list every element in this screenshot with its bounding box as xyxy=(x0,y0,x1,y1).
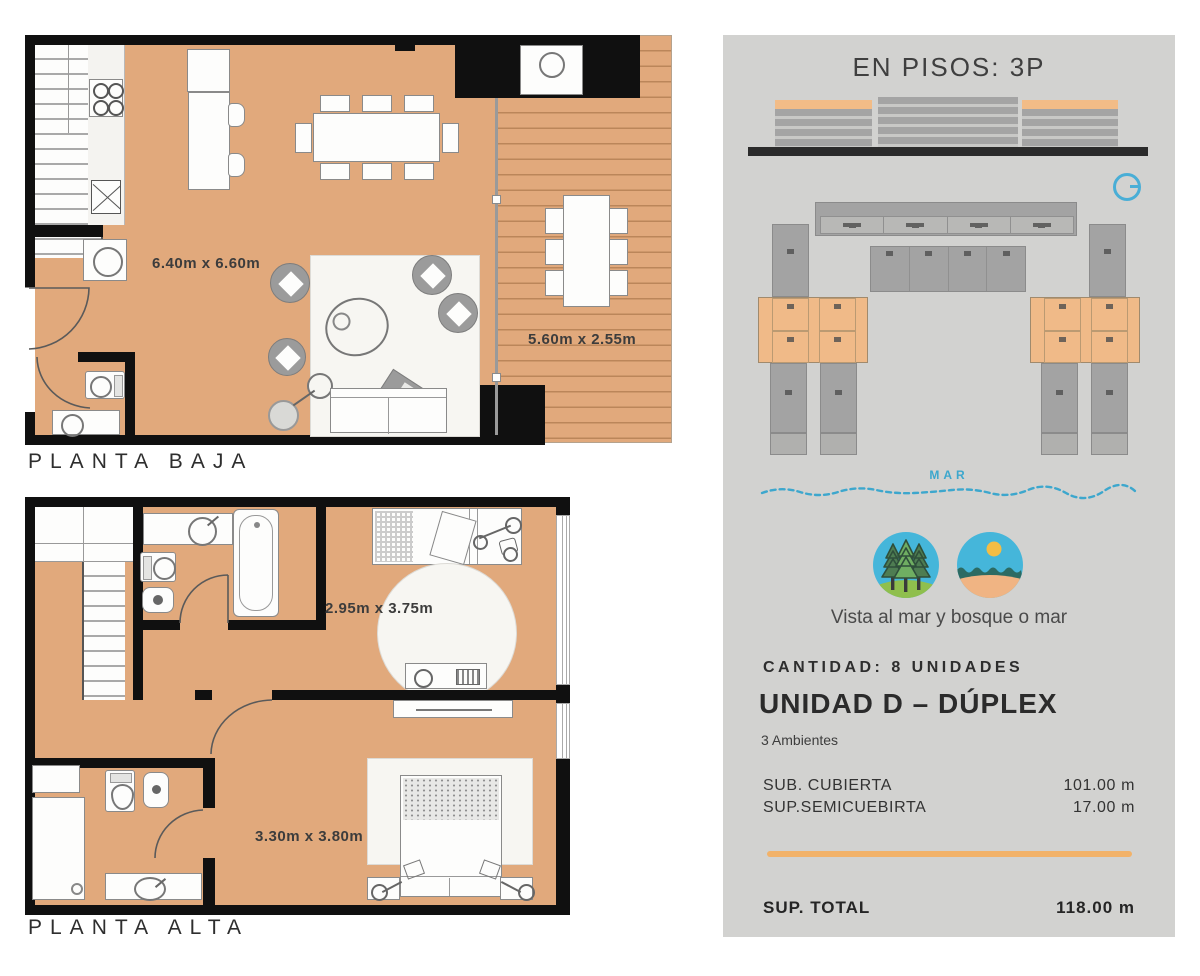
lamp xyxy=(371,884,388,901)
site-block-foot xyxy=(1091,433,1128,455)
bedroom2-dimension-label: 2.95m x 3.75m xyxy=(325,600,433,617)
dresser-item xyxy=(456,669,480,685)
desk-item xyxy=(503,547,518,562)
views-caption: Vista al mar y bosque o mar xyxy=(723,607,1175,629)
washer-drum xyxy=(93,247,123,277)
console xyxy=(393,700,513,718)
decor xyxy=(330,310,353,333)
bed-1 xyxy=(400,775,502,897)
bath-door-arc xyxy=(178,573,230,625)
unit-title: UNIDAD D – DÚPLEX xyxy=(759,688,1058,720)
wall xyxy=(395,45,415,51)
deck-table xyxy=(563,195,610,307)
window-line xyxy=(562,704,563,758)
site-unit xyxy=(871,247,910,291)
chair xyxy=(442,123,459,153)
dining-table xyxy=(313,113,440,162)
unit-d-cell xyxy=(772,298,809,331)
site-unit xyxy=(948,217,1011,233)
tub-drain xyxy=(254,522,260,528)
toilet-tank xyxy=(143,556,152,580)
deck-chair xyxy=(545,270,564,296)
planta-alta-caption: PLANTA ALTA xyxy=(28,916,249,940)
washing-machine xyxy=(83,239,127,281)
total-label: SUP. TOTAL xyxy=(763,898,870,918)
floor-plan-planta-alta: 2.95m x 3.75m xyxy=(25,497,570,915)
window-line xyxy=(566,704,567,758)
site-block xyxy=(1089,224,1126,297)
bedroom1-dimension-label: 3.30m x 3.80m xyxy=(255,828,363,845)
unit-d-cell xyxy=(772,331,809,363)
toilet xyxy=(140,552,176,582)
stove xyxy=(89,79,123,117)
stair-landing xyxy=(35,507,135,562)
sink xyxy=(61,414,84,437)
total-value: 118.00 m xyxy=(1056,898,1135,918)
burner xyxy=(93,100,109,116)
site-unit xyxy=(987,247,1025,291)
kitchen-sink xyxy=(91,180,121,214)
stair-line xyxy=(35,543,135,544)
unit-d-cell xyxy=(1044,298,1081,331)
chair xyxy=(362,163,392,180)
armchair xyxy=(438,293,478,333)
deck-chair xyxy=(545,208,564,234)
elevation-floors xyxy=(775,109,872,147)
window-line xyxy=(562,516,563,684)
site-block-foot xyxy=(1041,433,1078,455)
site-map xyxy=(723,200,1175,462)
site-block xyxy=(1091,363,1128,433)
nightstand xyxy=(367,877,400,900)
wall xyxy=(133,620,180,630)
unit-subtitle: 3 Ambientes xyxy=(761,732,838,748)
wall xyxy=(25,35,35,287)
toilet-bowl xyxy=(153,557,176,580)
surface-label: SUP.SEMICUEBIRTA xyxy=(763,799,926,817)
armchair xyxy=(270,263,310,303)
living-dimension-label: 6.40m x 6.60m xyxy=(152,255,260,272)
deck-chair xyxy=(545,239,564,265)
entry-door-arc xyxy=(27,285,93,353)
grill-burner xyxy=(539,52,565,78)
armchair-cushion xyxy=(420,263,445,288)
deck-chair xyxy=(609,239,628,265)
bed-pillow xyxy=(375,511,413,562)
bidet-drain xyxy=(152,785,161,794)
unit-d-cell xyxy=(819,331,856,363)
site-units-strip xyxy=(820,216,1074,234)
site-unit xyxy=(949,247,988,291)
burner xyxy=(93,83,109,99)
sea-label: MAR xyxy=(723,468,1175,482)
kitchen-island xyxy=(188,92,230,190)
site-unit xyxy=(821,217,884,233)
accent-divider xyxy=(767,851,1132,857)
wall xyxy=(480,385,545,445)
north-indicator-icon xyxy=(1113,173,1141,201)
wall xyxy=(228,620,326,630)
bath-vanity xyxy=(105,873,202,900)
toilet-tank xyxy=(114,375,123,397)
site-block-foot xyxy=(820,433,857,455)
shelf xyxy=(32,765,80,793)
stool xyxy=(228,103,245,127)
site-block-unit-d xyxy=(758,297,868,363)
unit-d-cell xyxy=(1091,331,1128,363)
toilet-bowl xyxy=(90,376,112,398)
bath-door-arc xyxy=(33,357,93,411)
ground-line xyxy=(748,147,1148,156)
bedroom-door-arc xyxy=(210,700,274,756)
site-block xyxy=(772,224,809,297)
total-row: SUP. TOTAL 118.00 m xyxy=(763,898,1135,918)
chair xyxy=(320,163,350,180)
lamp-arm xyxy=(501,881,521,893)
parrilla-grill xyxy=(520,45,583,95)
armchair-cushion xyxy=(446,301,471,326)
elevation-orange-band xyxy=(775,100,872,109)
wall xyxy=(272,690,556,700)
shower-drain xyxy=(71,883,83,895)
site-block-foot xyxy=(770,433,807,455)
burner xyxy=(108,83,124,99)
tub-inner xyxy=(239,515,273,611)
beach-icon xyxy=(957,532,1023,598)
dresser xyxy=(405,663,487,689)
surface-value: 17.00 m xyxy=(1073,799,1135,817)
unit-d-cell xyxy=(819,298,856,331)
wall xyxy=(25,497,570,507)
nightstand xyxy=(500,877,533,900)
bidet-drain xyxy=(153,595,163,605)
sofa-seat-line xyxy=(388,397,389,434)
burner xyxy=(108,100,124,116)
toilet-tank xyxy=(110,773,132,783)
chair xyxy=(320,95,350,112)
unit-d-cell xyxy=(1091,298,1128,331)
wall xyxy=(35,225,103,237)
glass-joint xyxy=(492,195,501,204)
elevation-orange-band xyxy=(1022,100,1118,109)
glass-wall xyxy=(495,98,498,435)
quantity-label: CANTIDAD: 8 UNIDADES xyxy=(763,659,1023,677)
armchair-cushion xyxy=(275,345,300,370)
dresser-item xyxy=(414,669,433,688)
site-block-row xyxy=(870,246,1026,292)
elevation-floors xyxy=(1022,109,1118,147)
toilet xyxy=(105,770,135,812)
window xyxy=(556,703,570,759)
armchair xyxy=(268,338,306,376)
chair xyxy=(404,163,434,180)
bidet xyxy=(142,587,174,613)
wall xyxy=(25,905,570,915)
site-block-unit-d xyxy=(1030,297,1140,363)
armchair xyxy=(412,255,452,295)
deck-dimension-label: 5.60m x 2.55m xyxy=(528,331,636,348)
wall xyxy=(195,690,212,700)
site-unit xyxy=(910,247,949,291)
surface-row: SUP.SEMICUEBIRTA 17.00 m xyxy=(763,799,1135,817)
info-panel: EN PISOS: 3P xyxy=(723,35,1175,937)
window-line xyxy=(566,516,567,684)
wall xyxy=(125,352,135,445)
wall xyxy=(203,758,215,808)
wall xyxy=(25,35,510,45)
window xyxy=(556,515,570,685)
deck-chair xyxy=(609,270,628,296)
toilet-bowl xyxy=(111,784,134,810)
armchair-cushion xyxy=(278,271,303,296)
site-block xyxy=(1041,363,1078,433)
bath-door-arc xyxy=(153,810,205,860)
surface-value: 101.00 m xyxy=(1063,777,1135,795)
chair xyxy=(404,95,434,112)
site-block xyxy=(770,363,807,433)
glass-joint xyxy=(492,373,501,382)
chair xyxy=(362,95,392,112)
chair xyxy=(295,123,312,153)
bathtub xyxy=(233,509,279,617)
stair-rail xyxy=(68,45,69,133)
surface-label: SUB. CUBIERTA xyxy=(763,777,892,795)
stool xyxy=(228,153,245,177)
bath-vanity xyxy=(143,513,233,545)
site-block-row xyxy=(815,202,1077,236)
site-unit xyxy=(884,217,947,233)
deck-chair xyxy=(609,208,628,234)
bed-2 xyxy=(372,508,522,565)
staircase xyxy=(82,562,125,700)
planta-baja-caption: PLANTA BAJA xyxy=(28,450,253,474)
shower xyxy=(32,797,85,900)
desk-lamp xyxy=(505,517,522,534)
surface-row: SUB. CUBIERTA 101.00 m xyxy=(763,777,1135,795)
panel-title: EN PISOS: 3P xyxy=(723,52,1175,83)
lamp xyxy=(518,884,535,901)
bidet xyxy=(143,772,169,808)
console-line xyxy=(416,709,492,711)
floorplan-sheet: 6.40m x 6.60m 5.60m x 2.55m PLANTA BAJA xyxy=(0,0,1200,976)
desk-item xyxy=(473,535,488,550)
duvet xyxy=(403,778,499,820)
bed-line xyxy=(449,878,450,896)
stair-line xyxy=(83,507,84,561)
unit-d-cell xyxy=(1044,331,1081,363)
site-block xyxy=(820,363,857,433)
site-unit xyxy=(1011,217,1073,233)
sofa xyxy=(330,388,447,433)
bath-vanity xyxy=(52,410,120,435)
wall xyxy=(203,858,215,915)
elevation-floors xyxy=(878,97,1018,147)
fridge xyxy=(187,49,230,92)
floor-plan-planta-baja: 6.40m x 6.60m 5.60m x 2.55m xyxy=(25,35,675,445)
forest-icon xyxy=(873,532,939,598)
sea-wave-line xyxy=(760,483,1140,501)
